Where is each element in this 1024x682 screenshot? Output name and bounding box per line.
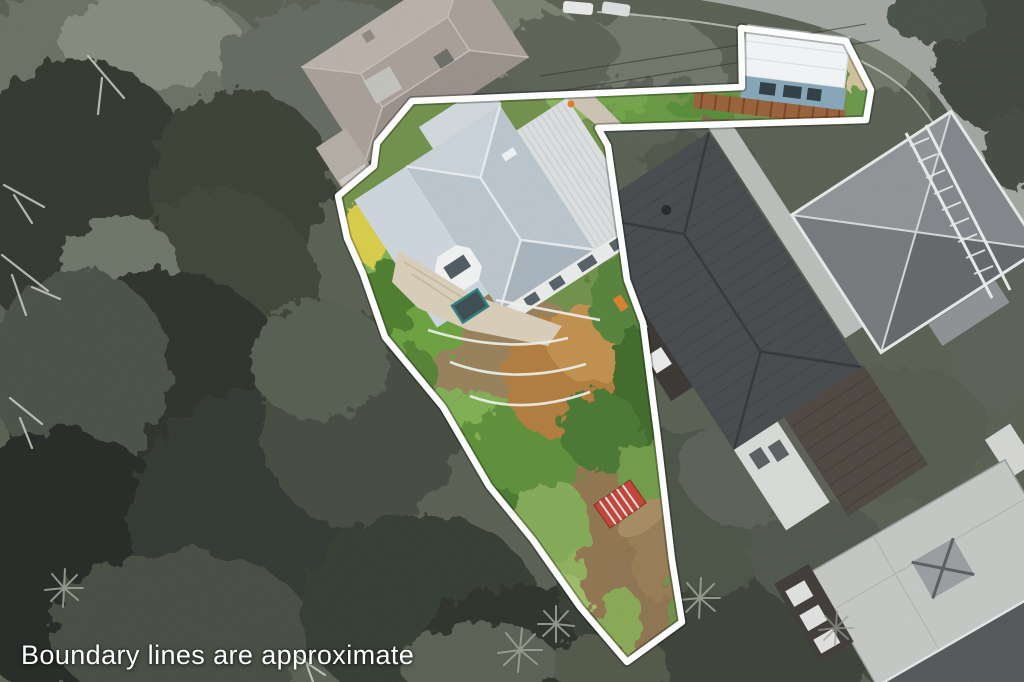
aerial-photo-canvas <box>0 0 1024 682</box>
caption-text: Boundary lines are approximate <box>21 641 414 671</box>
grain-overlay <box>0 0 1024 682</box>
aerial-photo: Boundary lines are approximate <box>0 0 1024 682</box>
